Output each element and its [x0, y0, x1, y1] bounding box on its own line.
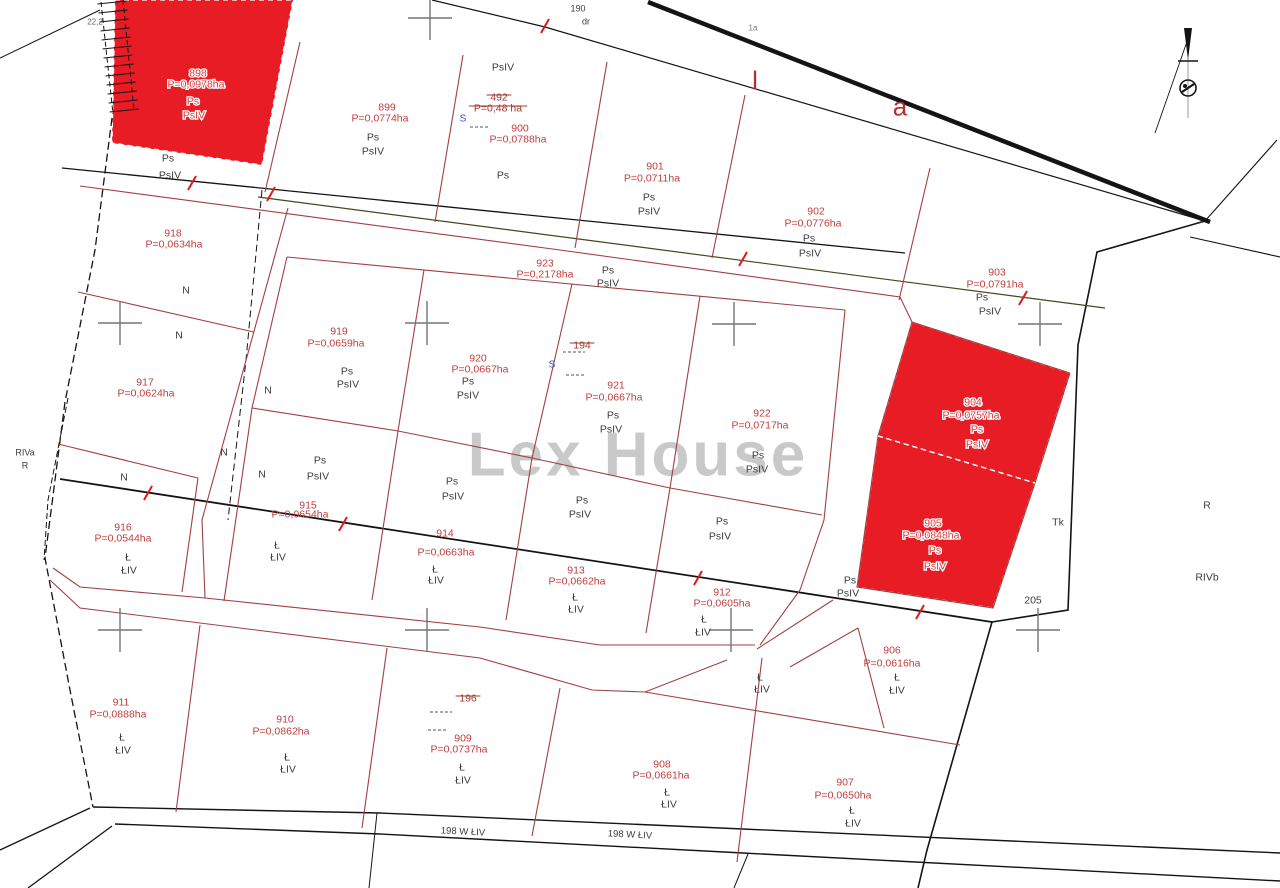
struck-label-P048ha: P=0,48 ha [474, 103, 522, 115]
map-label-198WŁIV: 198 W ŁIV [441, 825, 487, 838]
parcel-906-soil-label: ŁIV [889, 685, 905, 697]
boundary-line-15 [28, 826, 112, 888]
map-label-PsIV: PsIV [569, 509, 591, 521]
parcel-921-soil-label: Ps [607, 410, 619, 422]
parcel-909-soil-label: Ł [459, 762, 465, 774]
map-label-Ps: Ps [844, 575, 856, 587]
parcel-907-soil-label: Ł [849, 805, 855, 817]
parcel-905-number: 905 [924, 518, 942, 530]
map-label-Tk: Tk [1052, 517, 1064, 529]
cadastral-map-svg: 899P=0,0774haPsPsIV900P=0,0788haPs901P=0… [0, 0, 1280, 888]
map-label-N: N [258, 469, 266, 481]
parcel-904-number: 904 [964, 397, 982, 409]
parcel-916-soil-label: Ł [125, 552, 131, 564]
parcel-905-soil-label: Ps [929, 545, 941, 557]
parcel-904-soil-label: Ps [971, 424, 983, 436]
map-label-205: 205 [1024, 595, 1042, 607]
parcel-902-area: P=0,0776ha [785, 218, 842, 230]
parcel-line-4 [899, 168, 930, 300]
parcel-903-number: 903 [988, 267, 1006, 279]
symbol-flag-icon [1184, 28, 1192, 60]
parcel-line-29 [532, 688, 560, 836]
map-label-N: N [220, 447, 228, 459]
boundary-tick-icon [188, 176, 196, 190]
parcel-line-13 [372, 431, 398, 600]
parcel-920-soil-label: Ps [462, 376, 474, 388]
parcel-898-area: P=0,0978ha [168, 79, 225, 91]
parcel-907-number: 907 [836, 777, 854, 789]
map-label-N: N [182, 285, 190, 297]
parcel-line-25 [58, 444, 198, 478]
map-label-RIVa: RIVa [15, 448, 34, 458]
map-label-RIVb: RIVb [1195, 572, 1219, 584]
parcel-911-soil-label: ŁIV [115, 745, 131, 757]
parcel-907-soil-label: ŁIV [845, 818, 861, 830]
parcel-line-19 [757, 600, 833, 649]
map-label-PsIV: PsIV [442, 491, 464, 503]
parcel-905-soil-label: PsIV [924, 561, 946, 573]
inner-block-right [760, 310, 845, 645]
parcel-916-area: P=0,0544ha [95, 533, 152, 545]
parcel-898-soil-label: Ps [187, 96, 199, 108]
parcel-line-1 [435, 55, 463, 222]
map-label-1a: 1a [749, 24, 758, 33]
parcel-914-number: 914 [436, 528, 454, 540]
parcel-899-area: P=0,0774ha [352, 113, 409, 125]
parcel-922-soil-label: Ps [752, 450, 764, 462]
parcel-901-number: 901 [646, 161, 664, 173]
parcel-line-11 [532, 284, 572, 458]
map-label-222: 22,2 [87, 18, 103, 27]
parcel-915-soil-label: ŁIV [270, 552, 286, 564]
parcel-910-area: P=0,0862ha [253, 726, 310, 738]
ring-road-bottom-inner [53, 568, 755, 645]
map-label-Ł: Ł [757, 672, 763, 684]
parcel-913-soil-label: ŁIV [568, 604, 584, 616]
parcel-902-soil-label: Ps [803, 233, 815, 245]
map-label-Ps: Ps [446, 476, 458, 488]
parcel-909-soil-label: ŁIV [455, 775, 471, 787]
parcel-line-28 [362, 648, 387, 828]
parcel-919-soil-label: PsIV [337, 379, 359, 391]
parcel-908-soil-label: Ł [664, 787, 670, 799]
boundary-tick-icon [739, 252, 747, 266]
map-label-198WŁIV: 198 W ŁIV [608, 828, 654, 841]
parcel-line-21 [858, 628, 884, 728]
parcel-903-soil-label: PsIV [979, 306, 1001, 318]
soil-zone-line [60, 479, 992, 622]
parcel-915-area: P=0,0654ha [272, 509, 329, 521]
section-letter-l: l [752, 66, 758, 96]
parcel-916-soil-label: ŁIV [121, 565, 137, 577]
map-label-N: N [175, 330, 183, 342]
parcel-915-soil-label: Ł [274, 540, 280, 552]
parcel-898-soil-label: PsIV [183, 110, 205, 122]
parcel-914-area: P=0,0663ha [418, 547, 475, 559]
parcel-904-area: P=0,0757ha [943, 410, 1000, 422]
boundary-line-17 [734, 854, 748, 888]
parcel-917-area: P=0,0624ha [118, 388, 175, 400]
parcel-900-soil-label: Ps [497, 170, 509, 182]
map-label-Ps: Ps [162, 153, 174, 165]
inner-block-top [287, 257, 845, 310]
map-label-N: N [120, 472, 128, 484]
map-label-N: N [264, 385, 272, 397]
map-label-PsIV: PsIV [492, 62, 514, 74]
parcel-921-soil-label: PsIV [600, 424, 622, 436]
parcel-921-number: 921 [607, 380, 625, 392]
map-label-Ps: Ps [314, 455, 326, 467]
parcel-912-soil-label: Ł [701, 614, 707, 626]
road-198-south-edge [115, 824, 1280, 881]
parcel-913-area: P=0,0662ha [549, 576, 606, 588]
parcel-line-26 [182, 478, 198, 592]
parcel-911-number: 911 [113, 697, 130, 709]
parcel-902-soil-label: PsIV [799, 248, 821, 260]
parcel-912-soil-label: ŁIV [695, 627, 711, 639]
parcel-908-area: P=0,0661ha [633, 770, 690, 782]
parcel-911-area: P=0,0888ha [90, 709, 147, 721]
boundary-line-2 [1205, 140, 1277, 221]
map-label-dr: dr [582, 17, 590, 27]
old-boundary-dashed [228, 190, 262, 520]
boundary-line-3 [1190, 237, 1280, 257]
parcel-902-number: 902 [807, 206, 825, 218]
parcel-900-area: P=0,0788ha [490, 134, 547, 146]
main-road-boundary-thick [648, 2, 1210, 222]
section-letter-a: a [893, 92, 908, 122]
parcel-line-14 [506, 458, 532, 620]
parcel-921-area: P=0,0667ha [586, 392, 643, 404]
parcel-919-area: P=0,0659ha [308, 338, 365, 350]
ring-road-bottom-outer [50, 580, 727, 692]
parcel-923-soil-label: PsIV [597, 278, 619, 290]
parcel-903-soil-label: Ps [976, 292, 988, 304]
parcel-899-soil-label: PsIV [362, 146, 384, 158]
boundary-tick-icon [339, 517, 347, 531]
map-label-R: R [1203, 500, 1211, 512]
map-label-R: R [22, 461, 29, 471]
parcel-909-area: P=0,0737ha [431, 744, 488, 756]
parcel-line-12 [670, 296, 700, 488]
divider-906-907 [645, 692, 960, 745]
map-label-PsIV: PsIV [159, 170, 181, 182]
cadastral-map-page: Lex House 899P=0,0774haPsPsIV900P=0,0788… [0, 0, 1280, 888]
boundary-line-18 [0, 10, 100, 58]
parcel-923-area: P=0,2178ha [517, 269, 574, 281]
parcel-922-soil-label: PsIV [746, 464, 768, 476]
parcel-923-soil-label: Ps [602, 265, 614, 277]
parcel-line-27 [176, 625, 200, 812]
parcel-901-soil-label: Ps [643, 192, 655, 204]
parcel-911-soil-label: Ł [119, 732, 125, 744]
map-label-Ps: Ps [716, 516, 728, 528]
parcel-906-number: 906 [883, 645, 901, 657]
map-label-ŁIV: ŁIV [754, 684, 770, 696]
parcel-line-2 [575, 62, 607, 248]
parcel-922-area: P=0,0717ha [732, 420, 789, 432]
map-label-Ps: Ps [576, 495, 588, 507]
parcel-901-area: P=0,0711ha [624, 173, 680, 185]
parcel-910-number: 910 [276, 714, 294, 726]
parcel-905-area: P=0,0848ha [903, 530, 960, 542]
parcel-910-soil-label: ŁIV [280, 764, 296, 776]
parcel-906-area: P=0,0616ha [864, 658, 921, 670]
parcel-919-soil-label: Ps [341, 366, 353, 378]
survey-point-icon [1183, 84, 1187, 88]
parcel-907-area: P=0,0650ha [815, 790, 872, 802]
map-label-PsIV: PsIV [837, 588, 859, 600]
map-label-190: 190 [570, 4, 585, 14]
parcel-line-24 [78, 292, 254, 332]
parcel-919-number: 919 [330, 326, 348, 338]
parcel-906-soil-label: Ł [894, 672, 900, 684]
parcel-908-soil-label: ŁIV [661, 799, 677, 811]
parcel-line-20 [790, 628, 858, 667]
parcel-913-soil-label: Ł [572, 592, 578, 604]
parcel-912-area: P=0,0605ha [694, 598, 751, 610]
blue-mark-S: S [549, 360, 556, 371]
boundary-line-14 [0, 808, 90, 850]
parcel-line-15 [646, 488, 670, 633]
parcel-line-3 [712, 95, 745, 258]
parcel-922-number: 922 [753, 408, 771, 420]
map-label-PsIV: PsIV [307, 471, 329, 483]
parcel-920-soil-label: PsIV [457, 390, 479, 402]
parcel-910-soil-label: Ł [284, 752, 290, 764]
struck-label-196: 196 [459, 693, 477, 705]
parcel-918-area: P=0,0634ha [146, 239, 203, 251]
parcel-920-area: P=0,0667ha [452, 364, 509, 376]
blue-mark-S: S [460, 114, 467, 125]
road-190-edge [432, 0, 1205, 221]
parcel-899-soil-label: Ps [367, 132, 379, 144]
east-boundary-lower [918, 622, 992, 888]
symbol-line [1155, 33, 1190, 133]
map-label-PsIV: PsIV [709, 531, 731, 543]
parcel-904-soil-label: PsIV [966, 439, 988, 451]
parcel-914-soil-label: ŁIV [428, 575, 444, 587]
struck-label-194: 194 [573, 340, 591, 352]
parcel-903-area: P=0,0791ha [967, 279, 1024, 291]
boundary-line-16 [369, 813, 377, 888]
parcel-line-10 [398, 270, 424, 431]
parcel-901-soil-label: PsIV [638, 206, 660, 218]
hatch-rail-west [101, 2, 113, 114]
